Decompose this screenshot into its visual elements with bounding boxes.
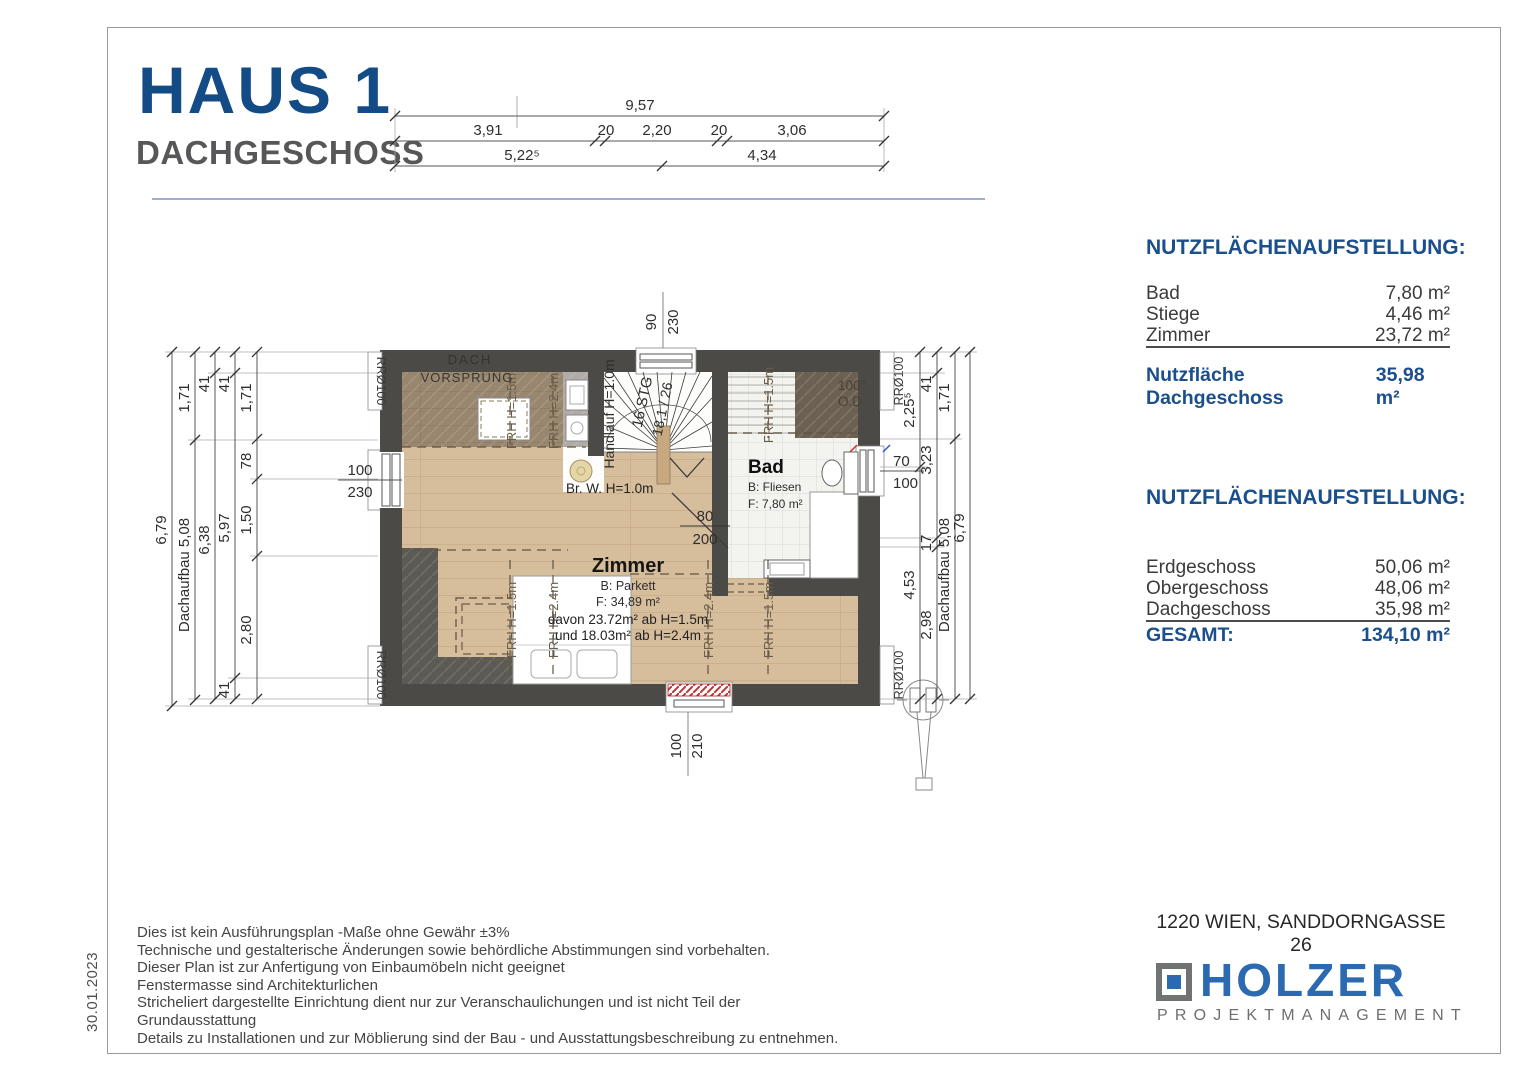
room-name-bad: Bad [748, 457, 784, 478]
holzer-logo-icon [1156, 963, 1192, 1001]
dim-label: 20 [598, 122, 615, 139]
roof-label: VORSPRUNG [421, 370, 514, 385]
window-left-height: 230 [347, 484, 372, 501]
project-address: 1220 WIEN, SANDDORNGASSE 26 [1150, 911, 1452, 957]
round-table [570, 460, 592, 482]
dim-label: 1,71 [238, 383, 255, 412]
window-right-height: 100 [893, 475, 918, 492]
area-table-house: NUTZFLÄCHENAUFSTELLUNG: Erdgeschoss 50,0… [1146, 486, 1450, 647]
table-row: Obergeschoss 48,06 m² [1146, 578, 1450, 599]
shower [810, 492, 858, 578]
zimmer-floor: B: Parkett [601, 579, 656, 593]
wall-bottom [380, 684, 880, 706]
frh-label: FRH H=2.4m [546, 373, 561, 449]
logo-name: HOLZER [1200, 953, 1407, 1007]
dim-label: 41 [216, 376, 233, 393]
table-row: Zimmer 23,72 m² [1146, 325, 1450, 348]
downpipe-label: RRØ100 [892, 651, 906, 700]
dim-label: 4,34 [747, 147, 776, 164]
zimmer-area: F: 34,89 m² [596, 595, 660, 609]
wall-stair-right [712, 372, 728, 596]
total-label: Nutzfläche Dachgeschoss [1146, 364, 1376, 410]
dim-label: 2,20 [642, 122, 671, 139]
shelf-b [566, 415, 588, 441]
parapet-label: Br. W. H=1.0m [566, 481, 653, 496]
row-value: 7,80 m² [1386, 283, 1450, 304]
row-value: 4,46 m² [1386, 304, 1450, 325]
disclaimer-line: Technische und gestalterische Änderungen… [137, 942, 877, 960]
downpipe-label: RRØ100 [374, 651, 388, 700]
roof-od: O.D. [838, 394, 866, 409]
dim-label: 6,79 [153, 515, 170, 544]
row-label: Bad [1146, 283, 1180, 304]
dim-label: 1,50 [238, 505, 255, 534]
dim-label: 6,38 [196, 525, 213, 554]
dim-label: 41 [196, 376, 213, 393]
dim-label: 6,79 [951, 513, 968, 542]
area-table-dachgeschoss: NUTZFLÄCHENAUFSTELLUNG: Bad 7,80 m² Stie… [1146, 236, 1450, 410]
total-value: 35,98 m² [1376, 364, 1450, 410]
window-top-height: 230 [665, 309, 682, 334]
dim-label: 1,71 [176, 383, 193, 412]
zimmer-note1: davon 23.72m² ab H=1.5m [548, 612, 708, 627]
window-top-width: 90 [643, 314, 660, 331]
holzer-logo-square [1167, 975, 1181, 989]
dim-label: 41 [918, 376, 935, 393]
table-row: Dachgeschoss 35,98 m² [1146, 599, 1450, 622]
toilet-cistern [844, 452, 858, 494]
frh-label: FRH H=1.5m [761, 367, 776, 443]
table-heading: NUTZFLÄCHENAUFSTELLUNG: [1146, 486, 1450, 510]
disclaimer-line: Dieser Plan ist zur Anfertigung von Einb… [137, 959, 877, 977]
wall-bad-bottom [769, 578, 858, 596]
dim-label: 3,23 [918, 445, 935, 474]
row-label: Erdgeschoss [1146, 557, 1256, 578]
disclaimer-line: Fenstermasse sind Architekturlichen [137, 977, 877, 995]
dim-label: 5,97 [216, 513, 233, 542]
right-dimension-labels: 2,25⁵ 4,53 41 3,23 17 2,98 1,71 Dachaufb… [901, 376, 968, 640]
dim-label: 2,80 [238, 615, 255, 644]
table-total: Nutzfläche Dachgeschoss 35,98 m² [1146, 364, 1450, 410]
dim-label: 3,06 [777, 122, 806, 139]
handrail-label: Handlauf H=1.0m [601, 359, 617, 468]
row-label: Zimmer [1146, 325, 1210, 346]
window-left-width: 100 [347, 462, 372, 479]
dim-label: 4,53 [901, 570, 918, 599]
row-value: 35,98 m² [1375, 599, 1450, 620]
dim-label: Dachaufbau 5,08 [176, 518, 193, 632]
disclaimer-line: Details zu Installationen und zur Möblie… [137, 1030, 877, 1048]
dim-label: 2,98 [918, 610, 935, 639]
window-bottom [666, 682, 732, 776]
dim-label: 17 [918, 535, 935, 552]
table-heading: NUTZFLÄCHENAUFSTELLUNG: [1146, 236, 1450, 260]
logo-subtitle: PROJEKTMANAGEMENT [1157, 1007, 1468, 1025]
dim-label: 1,71 [936, 383, 953, 412]
table-row: Bad 7,80 m² [1146, 283, 1450, 304]
disclaimer-block: Dies ist kein Ausführungsplan -Maße ohne… [137, 924, 877, 1047]
total-value: 134,10 m² [1361, 624, 1450, 647]
dim-label: 3,91 [473, 122, 502, 139]
room-name-zimmer: Zimmer [592, 555, 664, 577]
disclaimer-line: Stricheliert dargestellte Einrichtung di… [137, 994, 877, 1012]
row-value: 23,72 m² [1375, 325, 1450, 346]
dim-label: 2,25⁵ [901, 392, 918, 427]
row-value: 48,06 m² [1375, 578, 1450, 599]
shelf-a [566, 380, 588, 410]
dim-label: 20 [711, 122, 728, 139]
window-bottom-height: 210 [689, 733, 706, 758]
company-logo: HOLZER PROJEKTMANAGEMENT [1156, 961, 1451, 1041]
table-row: Stiege 4,46 m² [1146, 304, 1450, 325]
disclaimer-line: Grundausstattung [137, 1012, 877, 1030]
row-label: Stiege [1146, 304, 1200, 325]
row-value: 50,06 m² [1375, 557, 1450, 578]
dim-label: 9,57 [625, 97, 654, 114]
top-dimension-labels: 9,57 3,91 20 2,20 20 3,06 5,22⁵ 4,34 [473, 97, 806, 164]
dim-label: 41 [216, 682, 233, 699]
downpipe-label: RRØ100 [374, 357, 388, 406]
row-label: Dachgeschoss [1146, 599, 1271, 620]
table-row: Erdgeschoss 50,06 m² [1146, 557, 1450, 578]
frh-label: FRH H=1.5m [504, 582, 519, 658]
table-total: GESAMT: 134,10 m² [1146, 624, 1450, 647]
window-right-width: 70 [893, 453, 910, 470]
pillow [577, 650, 617, 678]
total-label: GESAMT: [1146, 624, 1234, 647]
roof-angle: 100° [838, 378, 866, 393]
dim-label: 5,22⁵ [504, 147, 539, 164]
bad-floor: B: Fliesen [748, 480, 801, 494]
door-width: 80 [697, 508, 714, 525]
roof-label: DACH [448, 352, 493, 367]
toilet-bowl [822, 460, 842, 486]
disclaimer-line: Dies ist kein Ausführungsplan -Maße ohne… [137, 924, 877, 942]
zimmer-note2: und 18.03m² ab H=2.4m [555, 628, 701, 643]
row-label: Obergeschoss [1146, 578, 1269, 599]
left-dimension-labels: 6,79 1,71 Dachaufbau 5,08 41 6,38 41 5,9… [153, 376, 255, 699]
dim-label: 78 [238, 453, 255, 470]
window-bottom-width: 100 [668, 733, 685, 758]
door-height: 200 [692, 531, 717, 548]
frh-label: FRH H=1.5m [761, 582, 776, 658]
bad-area: F: 7,80 m² [748, 497, 803, 511]
